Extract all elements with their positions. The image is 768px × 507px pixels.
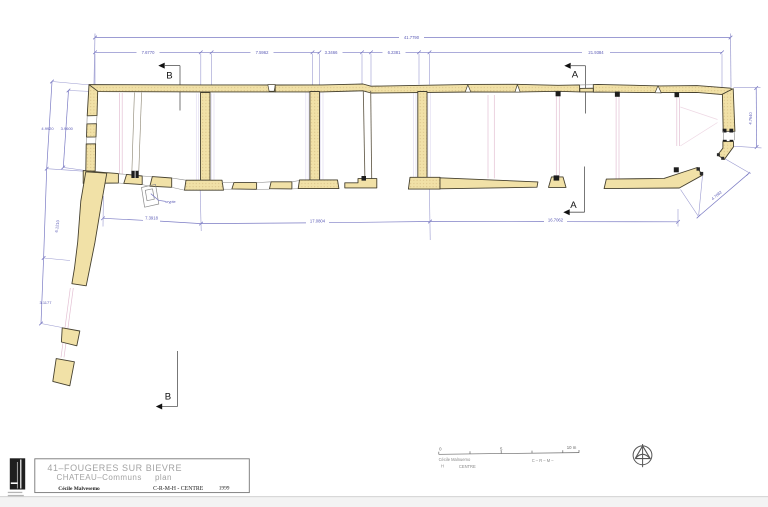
svg-text:6.2381: 6.2381: [388, 50, 401, 55]
svg-text:3.1177: 3.1177: [40, 300, 53, 305]
svg-text:17.0804: 17.0804: [310, 218, 326, 223]
svg-text:10 m: 10 m: [567, 445, 577, 450]
svg-text:4.9920: 4.9920: [41, 126, 54, 131]
svg-text:7.5962: 7.5962: [256, 50, 269, 55]
svg-text:CHATEAU–Communs: CHATEAU–Communs: [57, 473, 142, 482]
svg-text:C – R – M –: C – R – M –: [532, 458, 555, 463]
svg-text:16.7062: 16.7062: [548, 217, 564, 222]
svg-text:A: A: [570, 200, 577, 211]
svg-text:B: B: [165, 392, 171, 403]
svg-text:1999: 1999: [219, 486, 230, 492]
svg-text:crypte: crypte: [165, 200, 175, 204]
svg-text:H: H: [441, 463, 444, 468]
svg-text:C-R-M-H - CENTRE: C-R-M-H - CENTRE: [153, 486, 204, 492]
svg-text:plan: plan: [155, 473, 172, 482]
svg-text:3.9600: 3.9600: [61, 126, 74, 131]
svg-text:7.6770: 7.6770: [142, 50, 155, 55]
svg-text:A: A: [572, 70, 579, 81]
svg-text:41–FOUGERES SUR BIEVRE: 41–FOUGERES SUR BIEVRE: [47, 463, 182, 473]
svg-text:21.9384: 21.9384: [588, 50, 604, 55]
svg-text:7.3918: 7.3918: [145, 215, 158, 220]
svg-text:Cécile Malnuemo: Cécile Malnuemo: [439, 457, 471, 462]
svg-text:Cécile Malvesemo: Cécile Malvesemo: [58, 486, 100, 492]
svg-text:4.7640: 4.7640: [748, 111, 753, 124]
svg-text:B: B: [166, 71, 172, 82]
svg-text:3.3466: 3.3466: [325, 50, 338, 55]
svg-text:41.7790: 41.7790: [404, 35, 420, 40]
svg-text:CENTRE: CENTRE: [459, 464, 476, 469]
